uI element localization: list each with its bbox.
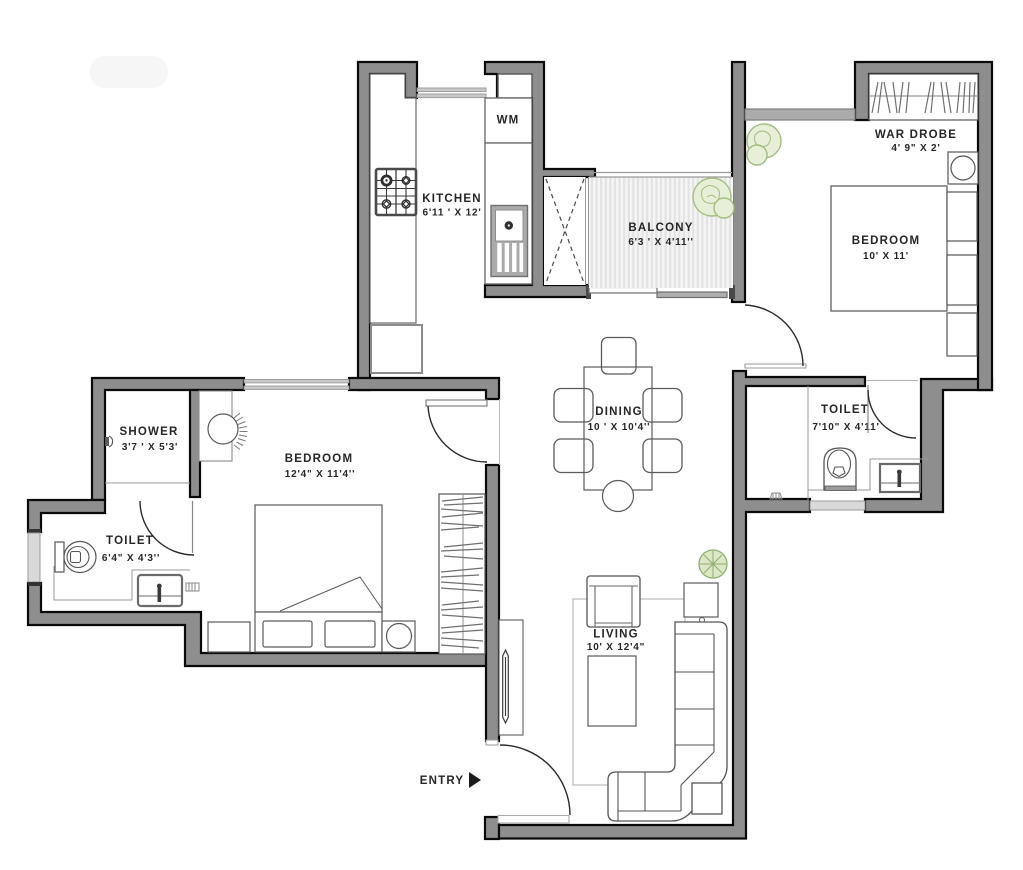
svg-text:BEDROOM: BEDROOM bbox=[285, 453, 353, 465]
svg-text:DINING: DINING bbox=[595, 406, 642, 418]
svg-text:SHOWER: SHOWER bbox=[120, 426, 179, 438]
svg-text:7'10" X 4'11': 7'10" X 4'11' bbox=[812, 422, 879, 433]
svg-text:KITCHEN: KITCHEN bbox=[422, 193, 482, 205]
svg-text:TOILET: TOILET bbox=[821, 404, 869, 416]
svg-text:WAR DROBE: WAR DROBE bbox=[875, 129, 957, 141]
svg-text:LIVING: LIVING bbox=[593, 629, 639, 641]
svg-text:10' X 12'4": 10' X 12'4" bbox=[587, 642, 645, 653]
svg-text:10' X 11': 10' X 11' bbox=[863, 251, 909, 262]
svg-text:BALCONY: BALCONY bbox=[628, 222, 693, 234]
svg-text:6'11 ' X 12': 6'11 ' X 12' bbox=[423, 208, 482, 219]
svg-text:BEDROOM: BEDROOM bbox=[852, 235, 920, 247]
svg-text:TOILET: TOILET bbox=[106, 535, 154, 547]
svg-text:4' 9" X 2': 4' 9" X 2' bbox=[891, 143, 940, 154]
svg-text:ENTRY: ENTRY bbox=[420, 775, 465, 787]
svg-text:3'7 ' X 5'3': 3'7 ' X 5'3' bbox=[122, 442, 178, 453]
svg-text:WM: WM bbox=[497, 115, 520, 127]
svg-text:6'4" X 4'3'': 6'4" X 4'3'' bbox=[102, 553, 160, 564]
svg-text:6'3 ' X 4'11'': 6'3 ' X 4'11'' bbox=[628, 237, 693, 248]
svg-text:12'4" X 11'4'': 12'4" X 11'4'' bbox=[285, 469, 356, 480]
svg-text:10 ' X 10'4'': 10 ' X 10'4'' bbox=[588, 422, 651, 433]
